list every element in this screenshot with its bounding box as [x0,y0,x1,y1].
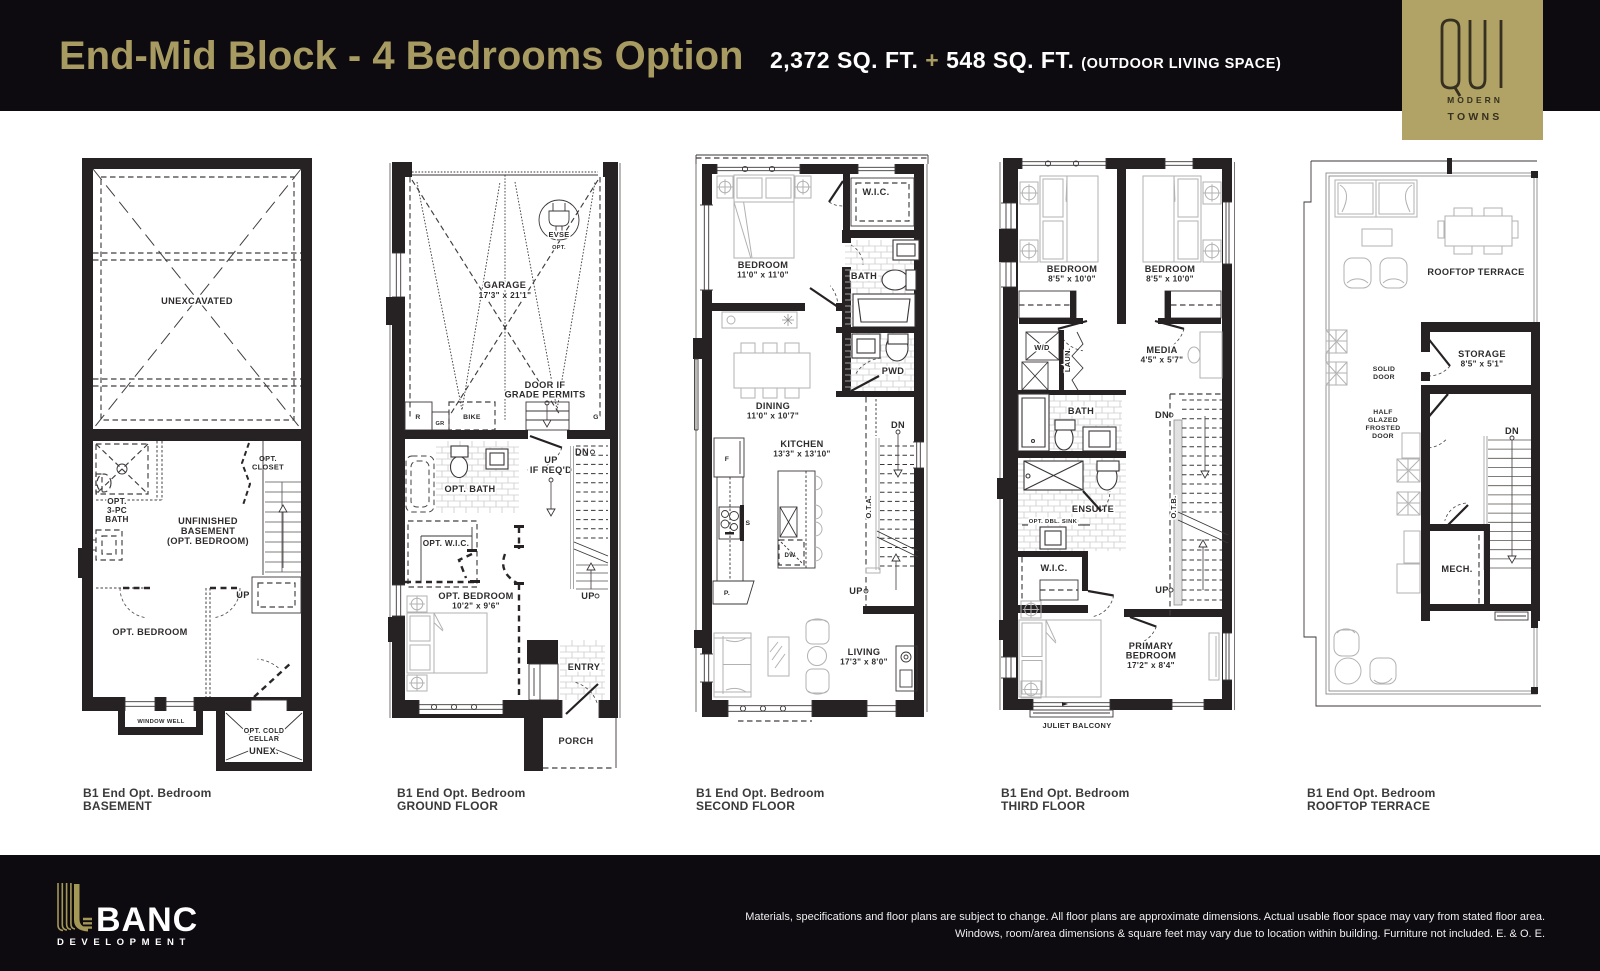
svg-text:8'5" x 5'1": 8'5" x 5'1" [1461,360,1504,369]
svg-text:LAUN.: LAUN. [1063,348,1072,372]
svg-text:S: S [746,520,751,527]
svg-text:UP: UP [1155,585,1168,595]
svg-text:R: R [415,414,420,421]
svg-text:JULIET BALCONY: JULIET BALCONY [1043,721,1112,730]
svg-text:DN: DN [891,420,905,430]
svg-text:DINING: DINING [756,401,790,411]
svg-text:DOOR: DOOR [1373,374,1395,381]
svg-text:OPT. BEDROOM: OPT. BEDROOM [112,627,187,637]
svg-text:(OPT. BEDROOM): (OPT. BEDROOM) [167,536,249,546]
svg-text:OPT. BATH: OPT. BATH [445,484,496,494]
svg-text:W.I.C.: W.I.C. [1040,563,1067,573]
svg-text:UP: UP [236,590,249,600]
svg-text:FROSTED: FROSTED [1366,425,1401,432]
svg-text:DN: DN [1505,426,1519,436]
svg-text:17'2" x 8'4": 17'2" x 8'4" [1127,661,1175,670]
svg-text:11'0" x 10'7": 11'0" x 10'7" [747,412,799,421]
svg-text:DOOR: DOOR [1372,433,1394,440]
svg-text:F: F [725,456,730,463]
svg-text:HALF: HALF [1373,409,1393,416]
svg-text:ENTRY: ENTRY [568,662,601,672]
svg-text:OPT.: OPT. [552,245,566,251]
svg-text:BATH: BATH [1068,406,1094,416]
svg-text:O.T.A.: O.T.A. [864,495,873,518]
svg-text:UNEX.: UNEX. [249,746,279,756]
svg-text:13'3" x 13'10": 13'3" x 13'10" [773,450,831,459]
svg-text:G: G [593,414,599,421]
svg-text:OPT.: OPT. [107,497,127,506]
svg-text:SOLID: SOLID [1373,366,1396,373]
svg-text:DN: DN [1155,410,1169,420]
svg-text:BIKE: BIKE [463,414,481,421]
svg-text:MEDIA: MEDIA [1146,345,1177,355]
svg-text:OPT. DBL. SINK: OPT. DBL. SINK [1029,519,1078,525]
svg-text:BASEMENT: BASEMENT [181,526,235,536]
svg-text:ENSUITE: ENSUITE [1072,504,1114,514]
svg-text:11'0" x 11'0": 11'0" x 11'0" [737,271,789,280]
svg-text:P.: P. [724,590,730,597]
svg-text:ROOFTOP TERRACE: ROOFTOP TERRACE [1427,267,1524,277]
svg-text:GRADE PERMITS: GRADE PERMITS [504,390,585,400]
svg-text:GR: GR [435,421,444,427]
svg-text:PWD: PWD [882,366,905,376]
svg-text:8'5" x 10'0": 8'5" x 10'0" [1146,275,1194,284]
svg-text:BATH: BATH [105,515,129,524]
svg-text:O.T.B.: O.T.B. [1169,495,1178,518]
svg-text:OPT. W.I.C.: OPT. W.I.C. [423,539,470,548]
svg-text:GARAGE: GARAGE [484,280,526,290]
svg-text:UP: UP [544,455,557,465]
svg-text:KITCHEN: KITCHEN [780,439,823,449]
svg-text:MECH.: MECH. [1441,564,1472,574]
svg-text:PORCH: PORCH [559,736,594,746]
svg-text:17'3" x 21'1": 17'3" x 21'1" [479,291,532,300]
svg-text:BATH: BATH [851,271,877,281]
svg-text:UP: UP [581,591,594,601]
svg-text:UP: UP [849,586,862,596]
svg-text:BEDROOM: BEDROOM [1047,264,1097,274]
svg-text:GLAZED: GLAZED [1368,417,1398,424]
svg-text:DOOR IF: DOOR IF [525,380,566,390]
svg-text:OPT. BEDROOM: OPT. BEDROOM [438,591,513,601]
svg-text:W/D: W/D [1034,343,1050,352]
svg-text:PRIMARY: PRIMARY [1129,641,1173,651]
svg-text:STORAGE: STORAGE [1458,349,1506,359]
svg-text:CLOSET: CLOSET [252,463,284,472]
svg-text:10'2" x 9'6": 10'2" x 9'6" [452,602,500,611]
svg-text:3-PC: 3-PC [107,506,127,515]
svg-text:IF REQ'D: IF REQ'D [530,465,572,475]
svg-text:EVSE: EVSE [548,230,569,239]
svg-text:BEDROOM: BEDROOM [1126,651,1176,661]
svg-text:UNFINISHED: UNFINISHED [178,516,238,526]
svg-text:DEVELOPMENT: DEVELOPMENT [57,937,191,948]
svg-text:BEDROOM: BEDROOM [738,260,788,270]
svg-text:17'3" x 8'0": 17'3" x 8'0" [840,658,888,667]
svg-text:4'5" x 5'7": 4'5" x 5'7" [1141,356,1184,365]
svg-text:BANC: BANC [96,901,198,939]
svg-text:8'5" x 10'0": 8'5" x 10'0" [1048,275,1096,284]
svg-text:W.I.C.: W.I.C. [862,187,889,197]
svg-text:UNEXCAVATED: UNEXCAVATED [161,296,233,306]
svg-text:CELLAR: CELLAR [249,736,280,743]
svg-text:OPT. COLD: OPT. COLD [244,728,285,735]
svg-text:LIVING: LIVING [848,647,881,657]
svg-text:BEDROOM: BEDROOM [1145,264,1195,274]
svg-text:WINDOW WELL: WINDOW WELL [137,719,184,725]
